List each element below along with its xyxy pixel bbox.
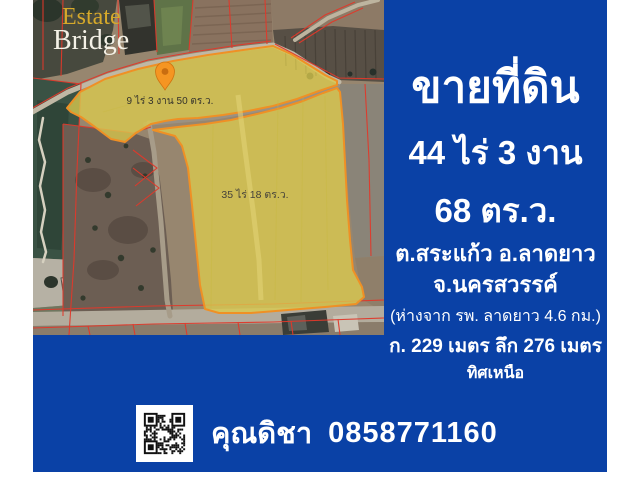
contact-name: คุณดิชา (211, 410, 312, 456)
info-panel: ขายที่ดิน 44 ไร่ 3 งาน 68 ตร.ว. ต.สระแก้… (384, 0, 607, 472)
estate-bridge-logo: Estate Bridge (53, 6, 129, 54)
location-line-2: จ.นครสวรรค์ (378, 267, 613, 302)
distance-note: (ห่างจาก รพ. ลาดยาว 4.6 กม.) (378, 304, 613, 329)
location-line-1: ต.สระแก้ว อ.ลาดยาว (378, 236, 613, 271)
qr-code-pattern (136, 405, 193, 462)
satellite-map: 9 ไร่ 3 งาน 50 ตร.ว. 35 ไร่ 18 ตร.ว. Est… (33, 0, 384, 335)
contact-phone: 0858771160 (328, 417, 498, 450)
land-sale-ad: 9 ไร่ 3 งาน 50 ตร.ว. 35 ไร่ 18 ตร.ว. Est… (0, 0, 640, 480)
plot-small-label: 9 ไร่ 3 งาน 50 ตร.ว. (127, 95, 214, 107)
direction-line: ทิศเหนือ (378, 361, 613, 386)
listing-title: ขายที่ดิน (378, 52, 613, 122)
area-line-2: 68 ตร.ว. (378, 184, 613, 237)
area-line-1: 44 ไร่ 3 งาน (378, 126, 613, 179)
contact-row: คุณดิชา 0858771160 (136, 404, 498, 462)
dimensions-line: ก. 229 เมตร ลึก 276 เมตร (378, 331, 613, 361)
plot-large-label: 35 ไร่ 18 ตร.ว. (221, 188, 288, 201)
qr-code (136, 405, 193, 462)
logo-line-bridge: Bridge (53, 28, 129, 54)
